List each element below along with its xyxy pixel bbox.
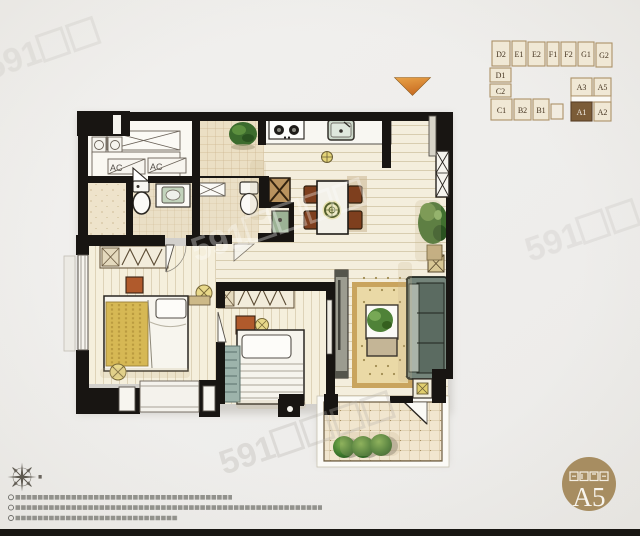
svg-text:C2: C2: [496, 87, 505, 96]
svg-text:A1: A1: [577, 108, 587, 117]
svg-text:A3: A3: [577, 83, 587, 92]
svg-text:C1: C1: [497, 106, 506, 115]
svg-text:A5: A5: [598, 83, 608, 92]
svg-text:G1: G1: [581, 50, 591, 59]
svg-text:AC: AC: [150, 162, 163, 172]
svg-text:D1: D1: [496, 71, 506, 80]
svg-text:D2: D2: [496, 50, 506, 59]
svg-text:B1: B1: [536, 106, 545, 115]
svg-text:B2: B2: [518, 106, 527, 115]
svg-text:E2: E2: [532, 50, 541, 59]
svg-text:A5: A5: [573, 482, 606, 512]
svg-text:A2: A2: [598, 108, 608, 117]
svg-text:F1: F1: [549, 50, 557, 59]
svg-text:AC: AC: [110, 163, 123, 173]
svg-text:E1: E1: [515, 50, 524, 59]
svg-text:G2: G2: [599, 51, 609, 60]
svg-text:F2: F2: [564, 50, 572, 59]
